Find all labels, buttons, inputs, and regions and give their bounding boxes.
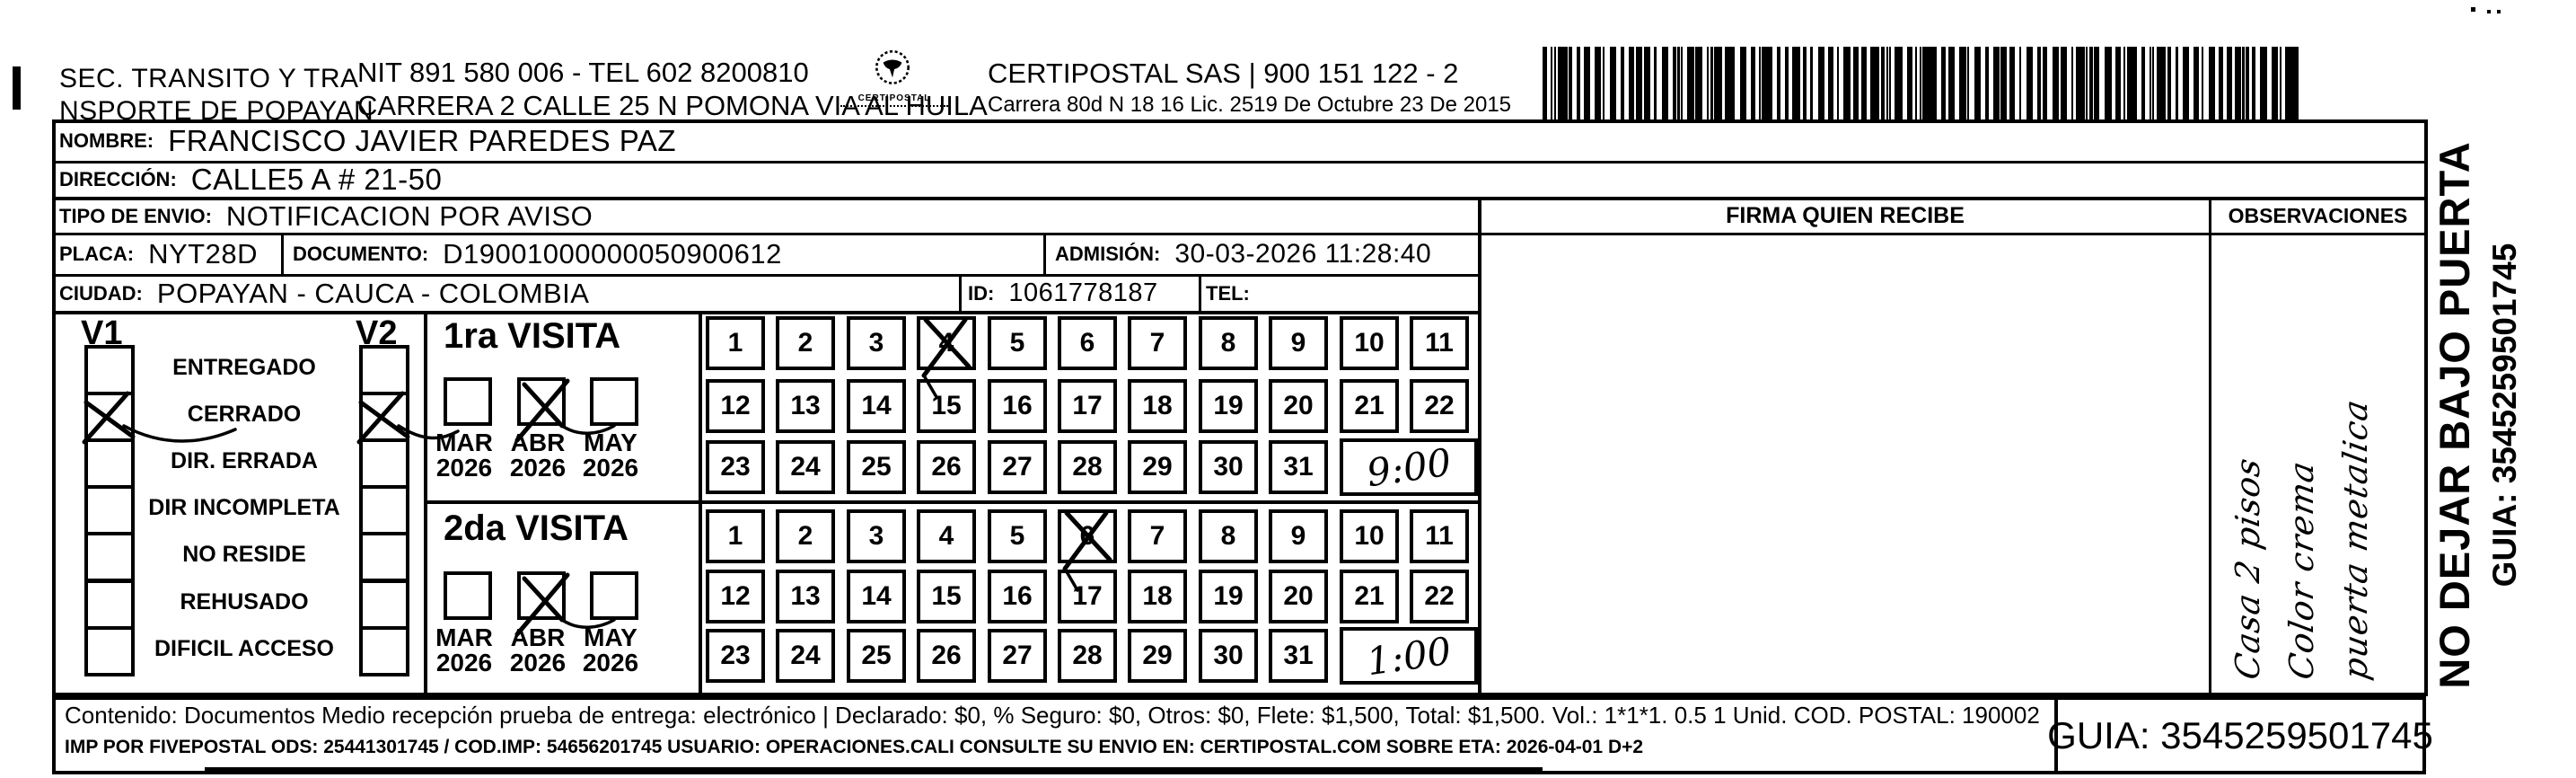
visit-1-title: 1ra VISITA: [444, 316, 620, 357]
checkbox-v2-1: [359, 392, 409, 442]
visit-1-day-6: 6: [1058, 316, 1117, 370]
checkbox-v1-2: [84, 438, 135, 489]
checkbox-v2-0: [359, 345, 409, 395]
scan-artifact: [13, 66, 21, 110]
visit-1-day-10: 10: [1340, 316, 1399, 370]
visit-2-day-2: 2: [776, 509, 835, 563]
month-checkbox-mar: [444, 571, 492, 620]
scan-artifact: [2497, 10, 2501, 13]
observaciones-column-header: OBSERVACIONES: [2211, 199, 2424, 233]
footer-border-left: [52, 696, 56, 774]
visit-2-day-29: 29: [1128, 629, 1187, 683]
visit-1-time-box: 9:00: [1340, 438, 1478, 496]
tel-label: TEL:: [1206, 282, 1250, 305]
checkbox-v1-3: [84, 485, 135, 535]
visit-2-day-23: 23: [706, 629, 765, 683]
visits-divider: [424, 500, 1481, 504]
visit-2-day-16: 16: [988, 570, 1047, 623]
visit-1-day-17: 17: [1058, 379, 1117, 433]
cell-divider: [1043, 233, 1046, 277]
visit-1-day-11: 11: [1410, 316, 1469, 370]
status-option-label: CERRADO: [135, 392, 354, 435]
checkbox-v2-6: [359, 626, 409, 676]
placa-label: PLACA:: [59, 243, 134, 266]
visit-2-day-18: 18: [1128, 570, 1187, 623]
admision-cell: ADMISIÓN: 30-03-2026 11:28:40: [1055, 234, 1431, 274]
month-checkbox-abr: [517, 377, 566, 426]
visit-1-day-27: 27: [988, 440, 1047, 494]
visit-2-day-14: 14: [847, 570, 906, 623]
direccion-row: DIRECCIÓN: CALLE5 A # 21-50: [59, 163, 442, 197]
documento-value: D19001000000050900612: [443, 238, 782, 270]
visit-2-day-28: 28: [1058, 629, 1117, 683]
visit-2-day-12: 12: [706, 570, 765, 623]
direccion-label: DIRECCIÓN:: [59, 168, 177, 191]
checkbox-v1-1: [84, 392, 135, 442]
column-divider-observaciones: [2209, 197, 2211, 696]
observaciones-handwriting: Casa 2 pisos Color crema puerta metalica: [2221, 266, 2388, 679]
checkbox-v2-4: [359, 532, 409, 582]
visit-1-day-7: 7: [1128, 316, 1187, 370]
month-checkbox-abr: [517, 571, 566, 620]
checkbox-v2-5: [359, 579, 409, 630]
visit-1-day-2: 2: [776, 316, 835, 370]
visit-1-day-28: 28: [1058, 440, 1117, 494]
visit-1-day-22: 22: [1410, 379, 1469, 433]
status-option-label: DIFICIL ACCESO: [135, 626, 354, 669]
month-year: 2026: [576, 454, 646, 482]
tel-cell: TEL:: [1206, 276, 1264, 311]
observaciones-line: puerta metalica: [2329, 261, 2383, 685]
visit-2-time-box: 1:00: [1340, 627, 1478, 685]
visit-1-day-8: 8: [1199, 316, 1258, 370]
id-label: ID:: [968, 282, 994, 305]
checkbox-v1-0: [84, 345, 135, 395]
firma-column-header: FIRMA QUIEN RECIBE: [1481, 199, 2209, 233]
visit-2-title: 2da VISITA: [444, 508, 629, 549]
sender-nit: NIT 891 580 006 - TEL 602 8200810: [357, 57, 809, 88]
table-border-right: [2424, 119, 2428, 696]
visit-1-day-20: 20: [1269, 379, 1328, 433]
sender-line1: SEC. TRANSITO Y TRA: [59, 64, 359, 93]
scanned-shipping-label: SEC. TRANSITO Y TRA NSPORTE DE POPAYAN N…: [0, 0, 2576, 778]
courier-name: CERTIPOSTAL SAS | 900 151 122 - 2: [988, 57, 1458, 90]
status-option-label: DIR INCOMPLETA: [135, 485, 354, 528]
handwritten-time: 9:00: [1364, 439, 1454, 495]
visit-2-day-20: 20: [1269, 570, 1328, 623]
tracking-barcode: [1543, 47, 2299, 122]
visit-2-day-7: 7: [1128, 509, 1187, 563]
visit-2-day-10: 10: [1340, 509, 1399, 563]
nombre-row: NOMBRE: FRANCISCO JAVIER PAREDES PAZ: [59, 122, 676, 160]
visit-1-day-16: 16: [988, 379, 1047, 433]
month-checkbox-may: [590, 571, 638, 620]
footer-content-line: Contenido: Documentos Medio recepción pr…: [65, 702, 2040, 729]
certipostal-logo-icon: [867, 47, 918, 93]
visit-1-day-26: 26: [917, 440, 976, 494]
scan-artifact: [2471, 7, 2475, 12]
checkbox-v1-4: [84, 532, 135, 582]
visit-1-day-14: 14: [847, 379, 906, 433]
guia-number: GUIA: 3545259501745: [2058, 696, 2422, 774]
footer-ops-line: IMP POR FIVEPOSTAL ODS: 25441301745 / CO…: [65, 737, 1643, 758]
visit-1-day-25: 25: [847, 440, 906, 494]
side-guia-number: GUIA: 3545259501745: [2486, 120, 2524, 710]
cell-divider: [281, 233, 284, 277]
visit-1-day-18: 18: [1128, 379, 1187, 433]
side-notice: NO DEJAR BAJO PUERTA GUIA: 3545259501745: [2430, 120, 2570, 710]
checkbox-v2-2: [359, 438, 409, 489]
visit-2-day-19: 19: [1199, 570, 1258, 623]
month-year: 2026: [429, 649, 499, 677]
checkbox-v1-6: [84, 626, 135, 676]
visit-2-day-6: 6: [1058, 509, 1117, 563]
visit-1-day-4: 4: [917, 316, 976, 370]
visit-2-day-9: 9: [1269, 509, 1328, 563]
month-year: 2026: [429, 454, 499, 482]
visit-2-day-8: 8: [1199, 509, 1258, 563]
tipo-envio-row: TIPO DE ENVIO: NOTIFICACION POR AVISO: [59, 199, 593, 233]
placa-cell: PLACA: NYT28D: [59, 234, 258, 274]
checkbox-v1-5: [84, 579, 135, 630]
documento-label: DOCUMENTO:: [293, 243, 428, 266]
visit-1-day-12: 12: [706, 379, 765, 433]
visit-2-day-11: 11: [1410, 509, 1469, 563]
direccion-value: CALLE5 A # 21-50: [191, 163, 443, 197]
visit-2-day-27: 27: [988, 629, 1047, 683]
row-divider: [52, 311, 1481, 314]
cell-divider: [959, 274, 962, 314]
checkbox-v2-3: [359, 485, 409, 535]
visit-2-day-26: 26: [917, 629, 976, 683]
nombre-label: NOMBRE:: [59, 129, 154, 153]
visit-1-day-29: 29: [1128, 440, 1187, 494]
status-option-label: ENTREGADO: [135, 345, 354, 388]
scan-artifact: [2487, 10, 2491, 13]
tipo-envio-label: TIPO DE ENVIO:: [59, 205, 212, 228]
month-year: 2026: [576, 649, 646, 677]
visit-1-day-3: 3: [847, 316, 906, 370]
cell-divider: [1199, 274, 1201, 314]
logo-caption: CERTIPOSTAL: [840, 93, 948, 107]
admision-label: ADMISIÓN:: [1055, 243, 1160, 266]
scan-artifact: [205, 767, 1543, 774]
visit-1-day-23: 23: [706, 440, 765, 494]
nombre-value: FRANCISCO JAVIER PAREDES PAZ: [168, 124, 676, 158]
visit-2-day-25: 25: [847, 629, 906, 683]
visit-2-day-3: 3: [847, 509, 906, 563]
status-option-label: REHUSADO: [135, 579, 354, 623]
panel-divider: [424, 311, 427, 696]
panel-divider: [699, 311, 702, 696]
month-checkbox-may: [590, 377, 638, 426]
id-value: 1061778187: [1008, 278, 1157, 308]
month-year: 2026: [503, 454, 573, 482]
visit-2-day-24: 24: [776, 629, 835, 683]
documento-cell: DOCUMENTO: D19001000000050900612: [293, 234, 782, 274]
observaciones-line: Color crema: [2275, 261, 2329, 685]
column-divider-firma: [1478, 197, 1481, 696]
visit-2-day-5: 5: [988, 509, 1047, 563]
placa-value: NYT28D: [148, 238, 258, 270]
table-border-left: [52, 119, 56, 696]
visit-2-day-1: 1: [706, 509, 765, 563]
admision-value: 30-03-2026 11:28:40: [1174, 239, 1431, 270]
visit-1-day-30: 30: [1199, 440, 1258, 494]
visit-2-day-13: 13: [776, 570, 835, 623]
ciudad-label: CIUDAD:: [59, 282, 143, 305]
visit-2-day-31: 31: [1269, 629, 1328, 683]
visit-1-day-15: 15: [917, 379, 976, 433]
visit-1-day-1: 1: [706, 316, 765, 370]
visit-2-day-17: 17: [1058, 570, 1117, 623]
id-cell: ID: 1061778187: [968, 276, 1158, 311]
ciudad-cell: CIUDAD: POPAYAN - CAUCA - COLOMBIA: [59, 276, 589, 311]
status-option-label: NO RESIDE: [135, 532, 354, 575]
status-option-label: DIR. ERRADA: [135, 438, 354, 482]
month-year: 2026: [503, 649, 573, 677]
tipo-envio-value: NOTIFICACION POR AVISO: [226, 200, 593, 233]
visit-1-day-13: 13: [776, 379, 835, 433]
visit-2-day-30: 30: [1199, 629, 1258, 683]
month-checkbox-mar: [444, 377, 492, 426]
visit-1-day-21: 21: [1340, 379, 1399, 433]
observaciones-line: Casa 2 pisos: [2221, 261, 2275, 685]
no-dejar-bajo-puerta-text: NO DEJAR BAJO PUERTA: [2430, 120, 2479, 710]
visit-2-day-4: 4: [917, 509, 976, 563]
visit-1-day-31: 31: [1269, 440, 1328, 494]
visit-1-day-19: 19: [1199, 379, 1258, 433]
visit-1-day-5: 5: [988, 316, 1047, 370]
courier-address: Carrera 80d N 18 16 Lic. 2519 De Octubre…: [988, 93, 1511, 118]
handwritten-time: 1:00: [1364, 628, 1454, 684]
visit-1-day-24: 24: [776, 440, 835, 494]
visit-1-day-9: 9: [1269, 316, 1328, 370]
visit-2-day-22: 22: [1410, 570, 1469, 623]
visit-2-day-21: 21: [1340, 570, 1399, 623]
sender-name: SEC. TRANSITO Y TRA NSPORTE DE POPAYAN: [59, 63, 374, 128]
visit-2-day-15: 15: [917, 570, 976, 623]
ciudad-value: POPAYAN - CAUCA - COLOMBIA: [157, 278, 590, 310]
